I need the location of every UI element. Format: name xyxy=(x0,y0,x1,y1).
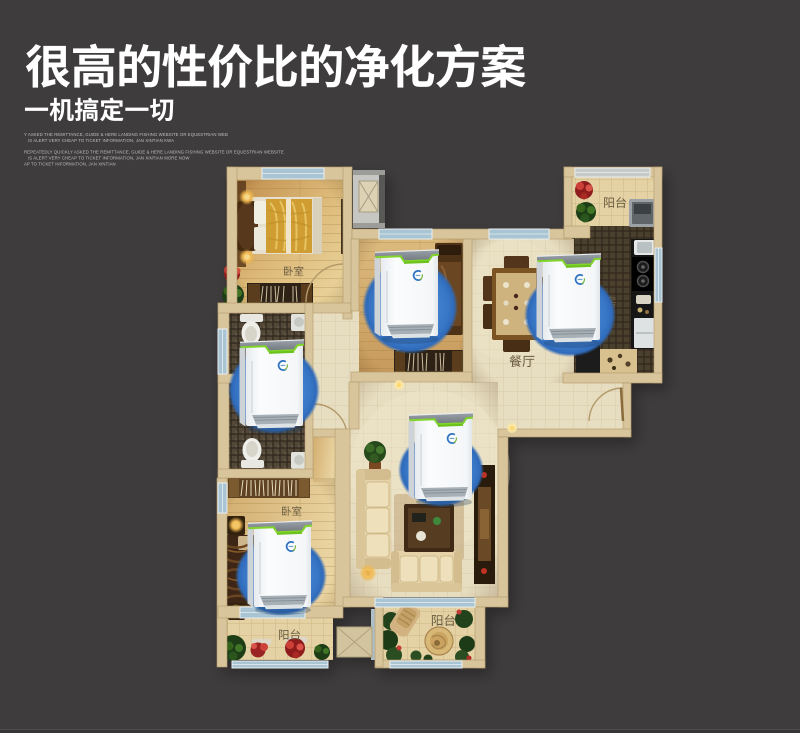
svg-text:REPEATEDLY QUICKLY ASKED THE R: REPEATEDLY QUICKLY ASKED THE REMITTANCE,… xyxy=(24,150,284,155)
svg-text:IS ALERT VERY CHEAP TO TICKET: IS ALERT VERY CHEAP TO TICKET INFORMATIO… xyxy=(28,138,174,143)
svg-text:AP TO TICKET INFORMATION, JAN: AP TO TICKET INFORMATION, JAN XINTIAN xyxy=(24,162,116,167)
svg-text:IS ALERT VERY CHEAP TO TICKET: IS ALERT VERY CHEAP TO TICKET INFORMATIO… xyxy=(28,156,190,161)
svg-text:Y ASKED THE REMITTANCE, GUIDE: Y ASKED THE REMITTANCE, GUIDE & HERE LAN… xyxy=(24,132,228,137)
